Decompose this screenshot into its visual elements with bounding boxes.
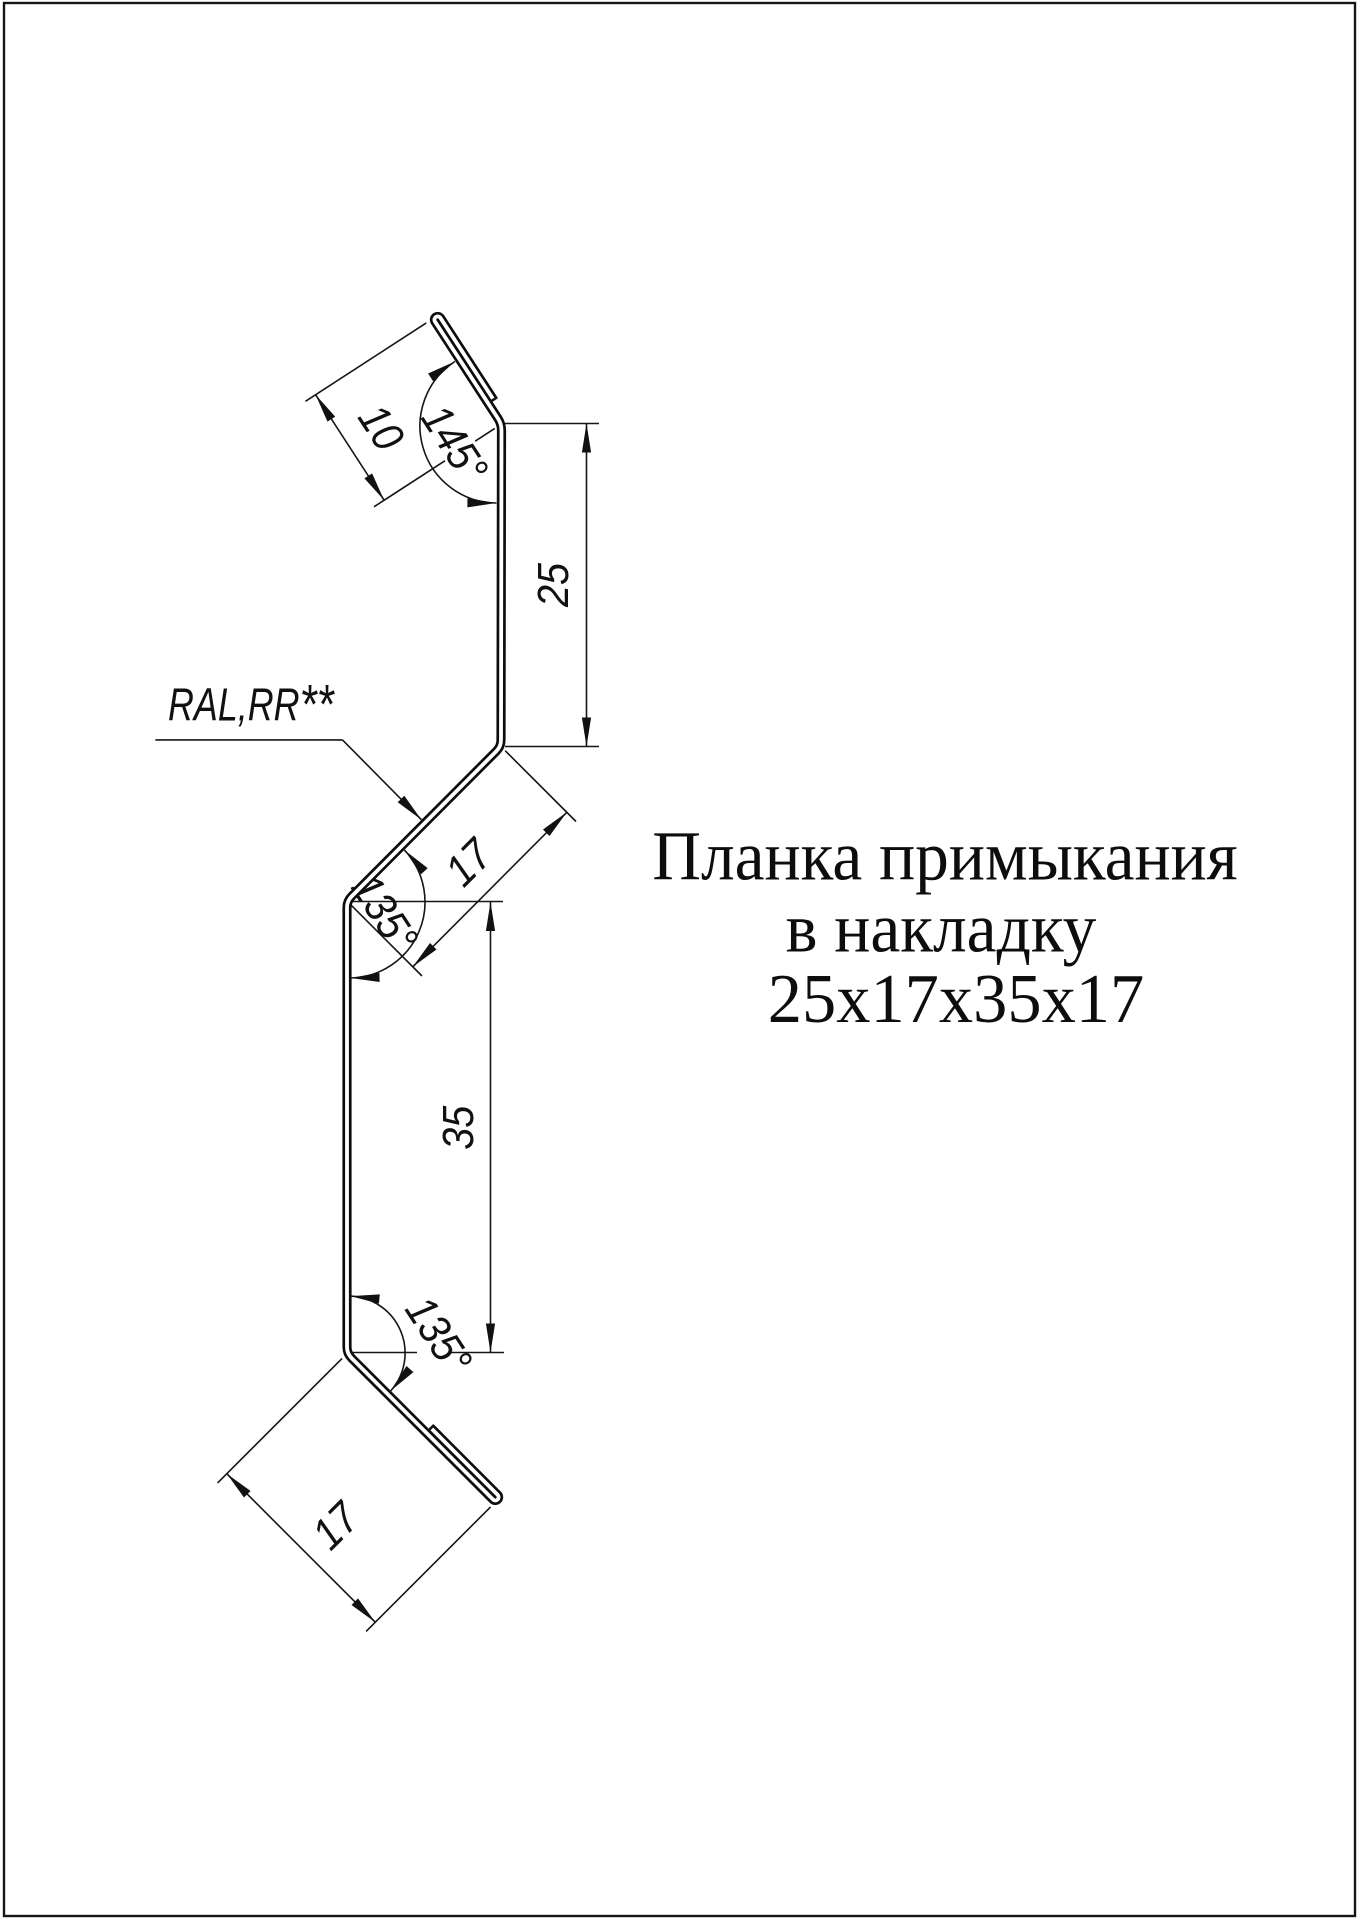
svg-text:RAL,RR**: RAL,RR** [168,673,335,735]
svg-text:Планка примыкания: Планка примыкания [652,817,1237,894]
svg-text:35: 35 [433,1105,482,1150]
svg-text:в накладку: в накладку [786,890,1097,967]
svg-text:25х17х35х17: 25х17х35х17 [768,961,1144,1038]
svg-text:25: 25 [528,562,577,608]
